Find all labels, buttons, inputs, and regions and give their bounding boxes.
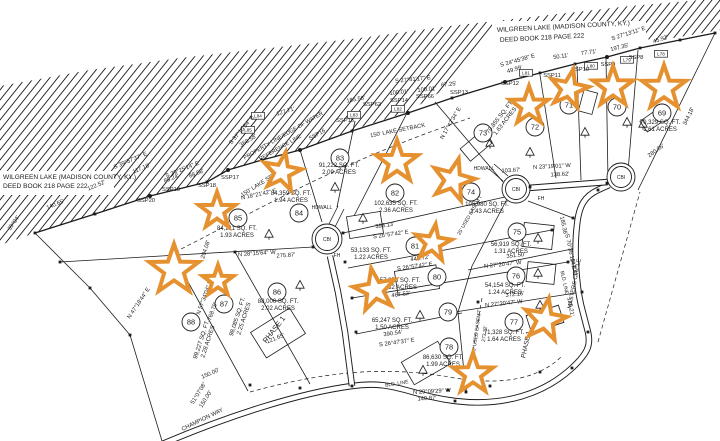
lot-number: 79 xyxy=(444,308,452,317)
lot-area-sqft: 56,919 SQ. FT. xyxy=(491,242,532,248)
lot-area-sqft: 91,222 SQ. FT. xyxy=(319,163,360,169)
lot-area-acres: 2.02 ACRES xyxy=(261,306,295,312)
septic-triangle-symbol xyxy=(296,281,304,291)
lot-number: 84 xyxy=(295,209,303,218)
septic-triangle-symbol xyxy=(534,234,542,244)
survey-point-dot xyxy=(298,148,302,152)
map-annotation: 275.87' xyxy=(276,252,295,259)
map-annotation: S 26°47'37" E xyxy=(379,338,415,349)
star-marker[interactable] xyxy=(149,244,198,291)
septic-triangle-symbol xyxy=(526,148,534,158)
star-marker[interactable] xyxy=(593,66,633,104)
line-tag-label: L81 xyxy=(522,71,530,76)
lot-area-sqft: 84,211 SQ. FT. xyxy=(217,226,257,232)
survey-monument-square xyxy=(89,287,92,290)
map-annotation: 138.62' xyxy=(550,172,569,179)
building-pad xyxy=(578,90,597,115)
survey-point-dot xyxy=(226,168,230,172)
lot-area-acres: 1.93 ACRES xyxy=(220,233,254,239)
star-marker[interactable] xyxy=(416,224,452,260)
lot-number: 69 xyxy=(658,109,666,118)
deed-note: WILGREEN LAKE (MADISON COUNTY, KY.) xyxy=(3,174,136,181)
map-annotation: 344.18' xyxy=(682,107,696,127)
cul-de-sac-label: CBI xyxy=(512,187,520,193)
lot-86: 8688,000 SQ. FT.2.02 ACRES xyxy=(258,283,299,312)
survey-monument-square xyxy=(344,261,347,264)
lot-boundary-line xyxy=(90,288,130,335)
map-annotation: 467.52' xyxy=(391,291,410,300)
lot-69: 6970,329 SQ. FT.1.61 ACRES xyxy=(640,104,681,133)
lot-area-labels: 70,329 SQ. FT.1.61 ACRES xyxy=(640,120,681,133)
lot-87: 8798,085 SQ. FT.2.25 ACRES xyxy=(215,295,254,339)
lot-number: 78 xyxy=(445,343,453,352)
lot-number: 83 xyxy=(336,154,344,163)
septic-triangle-symbol xyxy=(534,269,542,279)
survey-monument-square xyxy=(529,186,532,189)
septic-triangle-symbol xyxy=(623,118,631,128)
lot-area-sqft: 86,630 SQ. FT. xyxy=(423,355,464,361)
lot-number: 77 xyxy=(510,318,518,327)
lot-number: 85 xyxy=(234,214,242,223)
lot-area-labels: 71,328 SQ. FT.1.64 ACRES xyxy=(484,330,525,343)
map-annotation: 393.13' xyxy=(375,222,394,231)
map-annotation: SSP8 xyxy=(629,55,644,61)
lot-number: 76 xyxy=(512,272,520,281)
map-annotation: 280.86' xyxy=(647,143,666,159)
star-marker[interactable] xyxy=(526,298,567,340)
lot-73: 7370,855 SQ. FT.1.63 ACRES xyxy=(474,99,521,142)
lot-number: 72 xyxy=(531,123,539,132)
map-annotation: 140.87' xyxy=(417,396,436,403)
lot-79: 7965,247 SQ. FT.1.50 ACRES xyxy=(372,303,457,331)
map-annotation: N 23°19'01" W xyxy=(533,163,571,171)
lot-area-labels: 84,211 SQ. FT.1.93 ACRES xyxy=(217,226,257,239)
map-annotation: 204.08' xyxy=(200,240,212,260)
survey-monument-square xyxy=(351,297,354,300)
lot-area-labels: 88,000 SQ. FT.2.02 ACRES xyxy=(258,299,299,312)
lot-area-acres: 1.50 ACRES xyxy=(375,325,409,331)
map-annotation: 390.54' xyxy=(383,330,402,339)
deed-note: DEED BOOK 218 PAGE 222 xyxy=(3,183,88,190)
survey-monument-square xyxy=(571,367,574,370)
lot-area-acres: 1.64 ACRES xyxy=(487,337,521,343)
survey-monument-square xyxy=(351,130,354,133)
survey-monument-square xyxy=(639,47,642,50)
lot-area-acres: 2.09 ACRES xyxy=(322,170,356,176)
lot-area-acres: 1.61 ACRES xyxy=(643,127,677,133)
lot-77: 7771,328 SQ. FT.1.64 ACRES xyxy=(484,313,525,343)
map-annotation: 185.36' xyxy=(558,216,568,236)
line-tag-label: L82 xyxy=(394,107,402,112)
lot-number: 82 xyxy=(391,189,399,198)
survey-monument-square xyxy=(299,387,302,390)
lot-number: 87 xyxy=(220,300,228,309)
plat-map-svg: CBICBICBIL85L84L83L82L81L80L79L786970,32… xyxy=(0,0,720,441)
lot-area-sqft: 54,154 SQ. FT. xyxy=(485,283,526,289)
map-annotation: S 26°57'42" E xyxy=(373,230,409,241)
survey-monument-square xyxy=(249,384,252,387)
plat-document: CBICBICBIL85L84L83L82L81L80L79L786970,32… xyxy=(0,0,720,441)
map-annotation: HDWALL xyxy=(312,205,333,211)
map-annotation: BLD. LINE xyxy=(559,271,570,296)
map-annotation: SSP18 xyxy=(198,183,216,189)
map-annotation: SSP12 xyxy=(501,81,519,87)
map-annotation: FH xyxy=(538,196,545,202)
lot-area-labels: 91,222 SQ. FT.2.09 ACRES xyxy=(319,163,360,176)
lot-number: 81 xyxy=(411,242,419,251)
map-annotation: 50.11' xyxy=(553,53,569,61)
lot-area-labels: 102,635 SQ. FT.2.36 ACRES xyxy=(374,201,418,214)
map-annotation: SSP62 xyxy=(363,102,381,108)
cul-de-sac-label: CBI xyxy=(617,175,625,181)
survey-monument-square xyxy=(539,371,542,374)
map-annotation: SSP19 xyxy=(162,187,180,193)
line-tag-label: L83 xyxy=(350,113,358,118)
map-annotation: 77.71' xyxy=(581,49,597,57)
survey-monument-square xyxy=(94,213,97,216)
map-annotation: SSP66 xyxy=(416,94,434,100)
survey-monument-square xyxy=(539,72,542,75)
map-annotation: 103.67' xyxy=(501,168,520,175)
survey-monument-square xyxy=(454,400,457,403)
setback-dashed-line xyxy=(598,192,640,342)
survey-monument-square xyxy=(451,97,454,100)
lot-area-acres: 1.94 ACRES xyxy=(274,198,308,204)
survey-monument-square xyxy=(342,232,345,235)
septic-triangle-symbol xyxy=(416,311,424,321)
lot-78: 7886,630 SQ. FT.1.99 ACRES xyxy=(423,338,464,368)
line-tag-label: L78 xyxy=(657,52,665,57)
lot-number: 88 xyxy=(187,318,195,327)
survey-point-dot xyxy=(406,111,410,115)
survey-monument-square xyxy=(477,301,480,304)
lot-boundary-line xyxy=(638,33,715,190)
map-annotation: SSP13 xyxy=(450,90,468,96)
survey-point-dot xyxy=(605,55,609,59)
survey-monument-square xyxy=(465,391,468,394)
septic-triangle-symbol xyxy=(331,183,339,193)
lot-area-sqft: 70,329 SQ. FT. xyxy=(640,120,681,126)
map-annotation: N 47°18'44" E xyxy=(127,287,152,320)
septic-triangle-symbol xyxy=(581,128,589,138)
map-annotation: S 26°57'42" E xyxy=(397,262,433,273)
lot-area-labels: 53,133 SQ. FT.1.22 ACRES xyxy=(351,248,392,261)
map-annotation: FH xyxy=(334,253,341,259)
lot-boundary-line xyxy=(130,335,162,441)
map-annotation: SSP14 xyxy=(390,98,409,104)
survey-monument-square xyxy=(606,182,609,185)
lot-area-labels: 65,247 SQ. FT.1.50 ACRES xyxy=(372,318,413,331)
survey-monument-square xyxy=(489,385,492,388)
map-annotation: HDWALL xyxy=(474,166,495,172)
lot-area-sqft: 65,247 SQ. FT. xyxy=(372,318,413,324)
lot-82: 82102,635 SQ. FT.2.36 ACRES xyxy=(374,184,418,214)
lot-number: 86 xyxy=(273,288,281,297)
lot-83: 8391,222 SQ. FT.2.09 ACRES xyxy=(319,149,360,176)
lot-number: 75 xyxy=(513,228,521,237)
lot-boundary-line xyxy=(528,201,573,218)
map-annotation: SSP15 xyxy=(336,118,354,124)
survey-monument-square xyxy=(587,331,590,334)
lot-boundary-line xyxy=(458,266,472,312)
lot-number: 80 xyxy=(433,273,441,282)
survey-monument-square xyxy=(597,189,600,192)
survey-monument-square xyxy=(572,217,575,220)
lot-area-acres: 1.22 ACRES xyxy=(354,255,388,261)
star-marker[interactable] xyxy=(376,140,418,180)
survey-monument-square xyxy=(355,331,358,334)
road-surface-cul-de-sac-approach-west xyxy=(330,256,352,386)
map-annotation: 150.00' xyxy=(201,368,221,381)
survey-monument-square xyxy=(351,385,354,388)
lot-area-sqft: 102,635 SQ. FT. xyxy=(374,201,418,207)
lot-area-sqft: 53,133 SQ. FT. xyxy=(351,248,392,254)
star-marker[interactable] xyxy=(353,268,394,310)
map-annotation: N 27°20'47" W xyxy=(485,299,524,309)
lot-84: 8484,359 SQ. FT.1.94 ACRES xyxy=(271,191,312,222)
map-annotation: N 28°15'64" W xyxy=(238,250,277,259)
survey-monument-square xyxy=(551,229,554,232)
survey-monument-square xyxy=(714,32,717,35)
line-tag-label: L84 xyxy=(254,114,262,119)
lot-number: 70 xyxy=(613,103,621,112)
cul-de-sac-label: CBI xyxy=(323,237,331,243)
lot-number: 74 xyxy=(467,188,475,197)
star-marker[interactable] xyxy=(642,65,686,107)
map-annotation: SSP17 xyxy=(221,175,239,181)
lot-boundary-line xyxy=(335,209,344,227)
lot-area-sqft: 88,000 SQ. FT. xyxy=(258,299,299,305)
map-annotation: 67.25' xyxy=(441,81,457,89)
survey-monument-square xyxy=(234,251,237,254)
road-surface-cul-de-sac-connector-east xyxy=(528,182,608,188)
map-annotation: SSP20 xyxy=(137,198,155,204)
survey-monument-square xyxy=(129,334,132,337)
survey-monument-square xyxy=(679,39,682,42)
lot-area-acres: 2.36 ACRES xyxy=(379,208,413,214)
survey-monument-square xyxy=(34,232,37,235)
septic-triangle-symbol xyxy=(265,230,273,240)
survey-monument-square xyxy=(581,291,584,294)
map-annotation: 372.16' xyxy=(505,291,524,299)
survey-monument-square xyxy=(312,246,315,249)
lot-area-sqft: 71,328 SQ. FT. xyxy=(484,330,525,336)
survey-monument-square xyxy=(59,261,62,264)
lot-boundary-line xyxy=(627,50,638,184)
lot-75: 7556,919 SQ. FT.1.31 ACRES xyxy=(491,223,532,255)
map-annotation: 768.79' xyxy=(207,302,219,322)
